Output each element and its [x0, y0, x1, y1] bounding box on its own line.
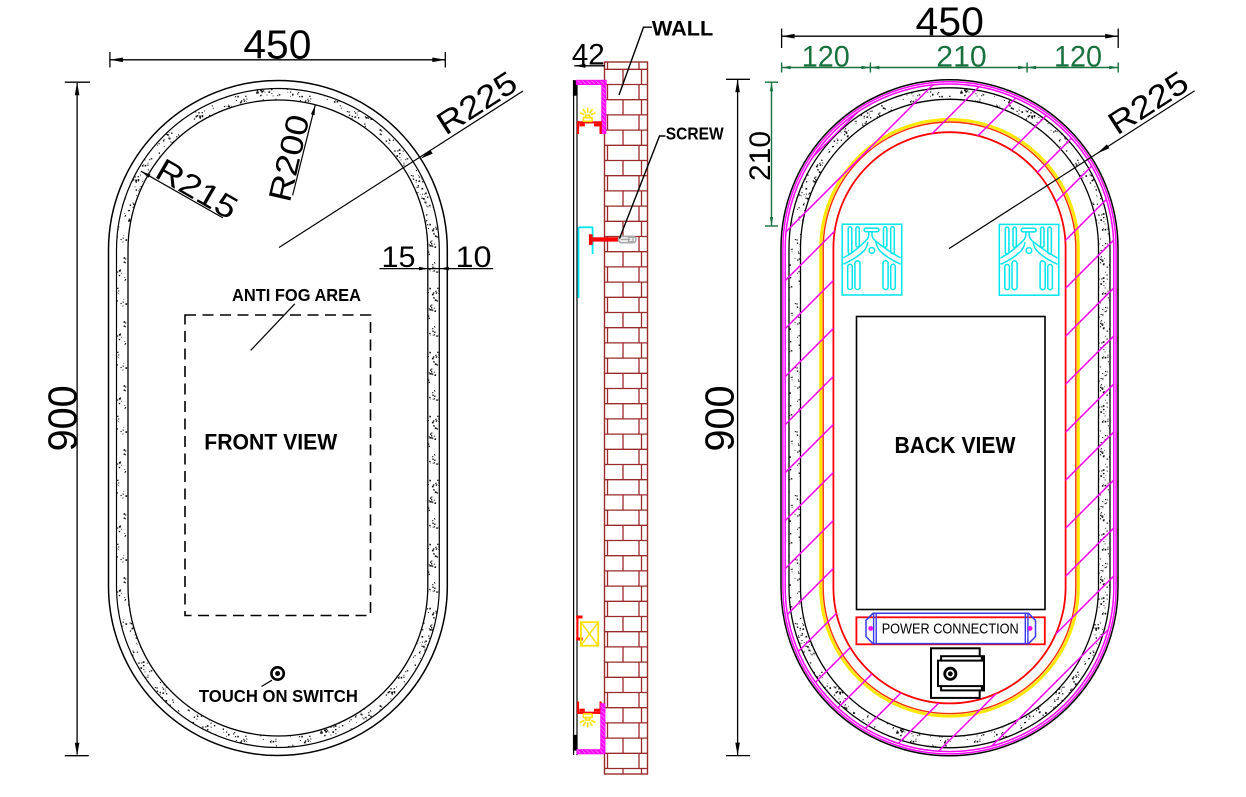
svg-text:210: 210: [936, 40, 986, 73]
svg-text:SCREW: SCREW: [666, 124, 724, 144]
svg-text:TOUCH ON SWITCH: TOUCH ON SWITCH: [199, 686, 358, 706]
svg-text:ANTI FOG AREA: ANTI FOG AREA: [232, 285, 361, 305]
svg-text:15: 15: [382, 241, 416, 274]
svg-text:10: 10: [456, 241, 492, 274]
svg-text:POWER CONNECTION: POWER CONNECTION: [882, 622, 1019, 638]
svg-text:900: 900: [40, 385, 86, 451]
svg-text:450: 450: [916, 0, 984, 44]
svg-text:BACK VIEW: BACK VIEW: [895, 432, 1016, 458]
svg-text:120: 120: [802, 40, 850, 73]
svg-text:900: 900: [697, 386, 743, 452]
svg-text:210: 210: [744, 131, 777, 181]
svg-text:450: 450: [243, 22, 311, 68]
svg-text:42: 42: [572, 39, 605, 72]
svg-text:FRONT VIEW: FRONT VIEW: [204, 429, 337, 454]
svg-text:120: 120: [1054, 40, 1102, 73]
svg-text:WALL: WALL: [652, 17, 714, 40]
